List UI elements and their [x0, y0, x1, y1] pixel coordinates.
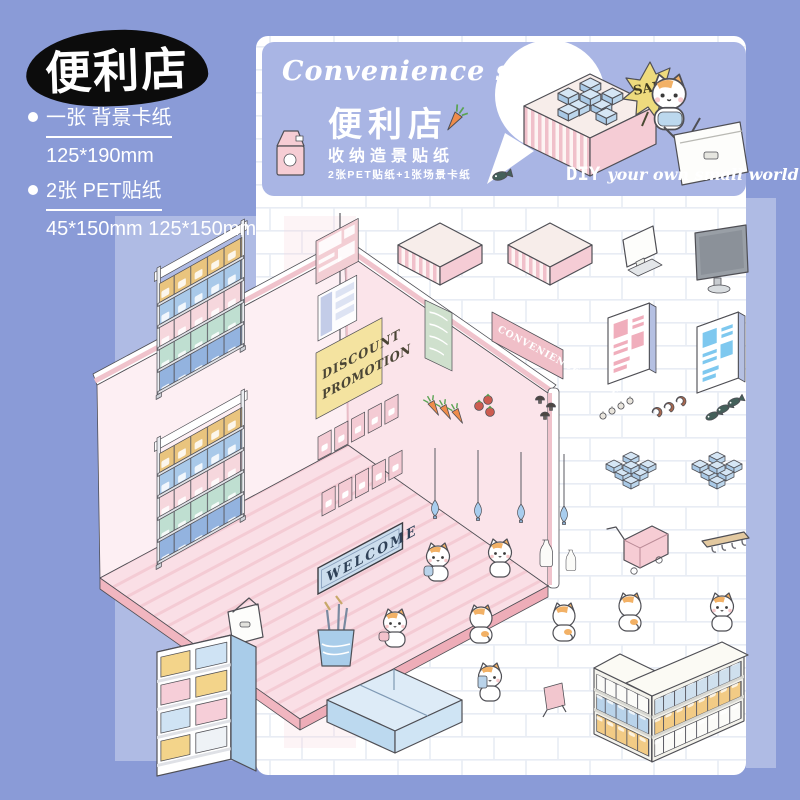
diy-tagline: DIYyour own small world: [566, 163, 799, 185]
banner-title-en: Convenience store: [282, 56, 578, 87]
spec-item: 一张 背景卡纸: [28, 106, 260, 138]
spec-size: 125*190mm: [46, 144, 260, 169]
spec-list: 一张 背景卡纸 125*190mm 2张 PET贴纸 45*150mm 125*…: [28, 106, 260, 252]
product-image: DISCOUNT PROMOTION CONVENIENCE STORE: [0, 0, 800, 800]
spec-label: 2张 PET贴纸: [46, 179, 162, 211]
menu-board-sign: [425, 300, 452, 371]
diy-suffix: your own small world: [607, 165, 798, 184]
spec-label: 一张 背景卡纸: [46, 106, 172, 138]
spec-size: 45*150mm 125*150mm: [46, 217, 260, 242]
cat-sticker: [711, 593, 734, 631]
cat-sticker-drinking: [478, 663, 502, 701]
diy-prefix: DIY: [566, 163, 600, 185]
drink-cabinet: [157, 635, 256, 776]
bullet-icon: [28, 185, 38, 195]
cat-sticker: [619, 593, 641, 631]
corner-title-text: 便利店: [44, 33, 190, 104]
spec-item: 2张 PET贴纸: [28, 179, 260, 211]
banner-title-zh: 便利店: [328, 97, 448, 146]
corner-title-badge: 便利店: [25, 27, 210, 109]
banner-note: 2张PET贴纸+1张场景卡纸: [328, 167, 471, 182]
bullet-icon: [28, 112, 38, 122]
milk-carton-icon: [277, 131, 304, 175]
banner-subtitle: 收纳造景贴纸: [328, 142, 454, 166]
